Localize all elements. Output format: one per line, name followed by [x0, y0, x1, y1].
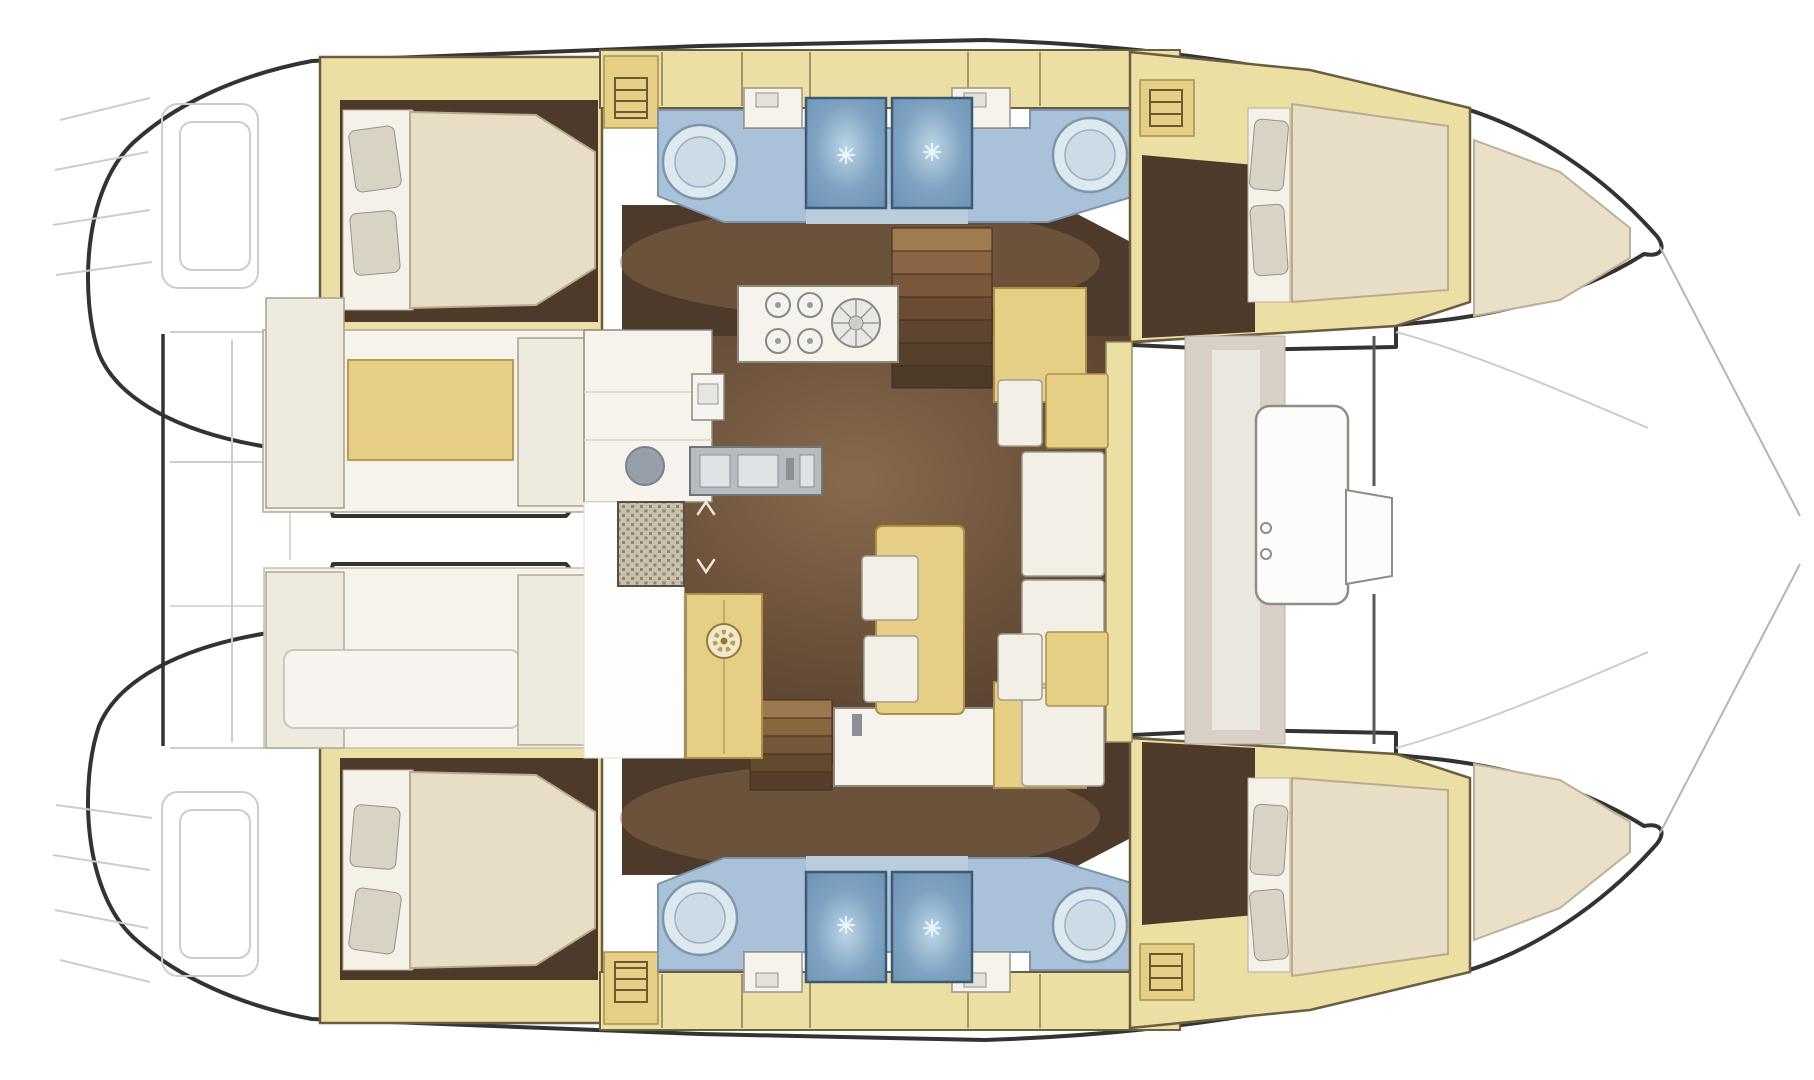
windshield-highlight: [1212, 350, 1260, 730]
cockpit-bench: [284, 650, 520, 728]
galley-sink-unit: [690, 447, 822, 495]
catamaran-floor-plan: [0, 0, 1814, 1080]
galley-basin: [626, 447, 664, 485]
starboard-aft-cabin-seat: [264, 568, 594, 748]
galley-round-sink: [832, 299, 880, 347]
galley-cabinet: [686, 594, 762, 758]
wardrobe-panel: [266, 298, 344, 508]
port-hull-staircase: [892, 228, 992, 388]
port-aft-cabin-vanity: [263, 298, 593, 512]
appliance-window: [698, 384, 718, 404]
sofa-back-wall: [1106, 342, 1132, 742]
wardrobe-panel: [518, 338, 592, 506]
floor-grate: [618, 502, 684, 586]
foredeck-door: [1256, 406, 1348, 604]
floor-plan-canvas: [0, 0, 1814, 1080]
door-step: [1346, 490, 1392, 584]
salon-front: [1185, 336, 1392, 744]
wardrobe-panel: [518, 575, 592, 745]
vanity-desk: [348, 360, 513, 460]
